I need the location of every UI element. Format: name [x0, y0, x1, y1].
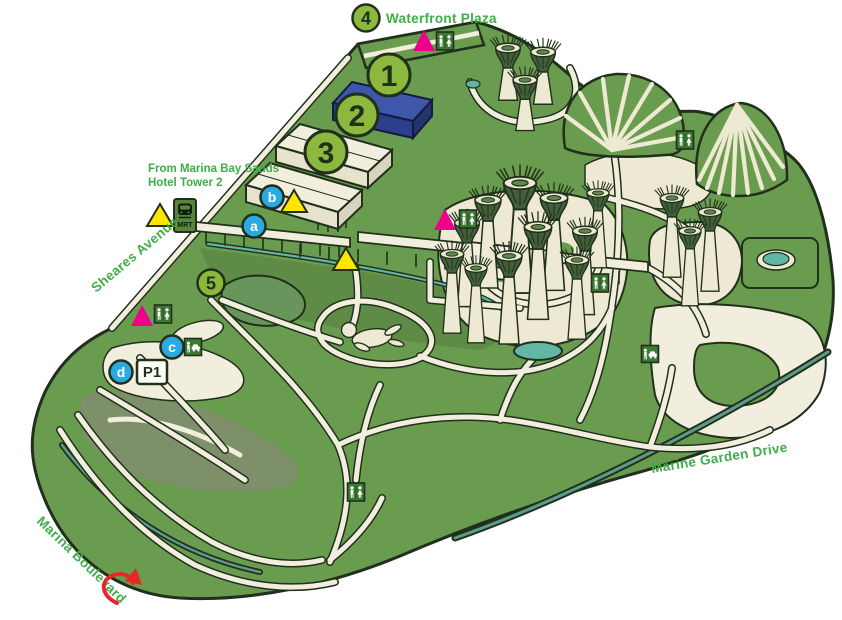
waterfront-plaza-label: Waterfront Plaza [386, 11, 497, 26]
svg-text:2: 2 [349, 100, 366, 133]
toilet-icon [348, 483, 365, 501]
toilet-icon [460, 210, 477, 228]
gardens-by-the-bay-map: MRT P1 1 2 3 4 [0, 0, 842, 620]
toilet-icon [155, 305, 172, 323]
svg-text:d: d [117, 364, 126, 380]
svg-text:3: 3 [318, 137, 335, 170]
svg-text:c: c [168, 339, 176, 355]
taxi-icon [642, 346, 659, 363]
toilet-icon [592, 274, 609, 292]
taxi-icon [185, 339, 202, 356]
marker-5[interactable]: 5 [198, 270, 225, 297]
small-pond [466, 80, 480, 88]
marker-3[interactable]: 3 [305, 131, 347, 173]
grove-pond [514, 342, 562, 360]
svg-text:b: b [268, 189, 277, 205]
toilet-icon [677, 131, 694, 149]
svg-text:a: a [250, 218, 258, 234]
parking-sign-label: P1 [143, 364, 161, 381]
marker-c[interactable]: c [161, 336, 184, 359]
svg-text:5: 5 [206, 274, 216, 294]
marker-d[interactable]: d [110, 361, 133, 384]
marker-b[interactable]: b [261, 186, 284, 209]
toilet-icon [437, 32, 454, 50]
marker-2[interactable]: 2 [336, 94, 378, 136]
map-canvas: MRT P1 1 2 3 4 [0, 0, 842, 620]
marker-a[interactable]: a [243, 215, 266, 238]
marker-4[interactable]: 4 [353, 5, 380, 32]
from-mbs-label-line2: Hotel Tower 2 [148, 177, 223, 189]
svg-text:4: 4 [361, 9, 371, 29]
parking-sign: P1 [137, 360, 167, 384]
from-mbs-label-line1: From Marina Bay Sands [148, 163, 279, 175]
svg-text:1: 1 [381, 60, 398, 93]
marker-1[interactable]: 1 [368, 54, 410, 96]
